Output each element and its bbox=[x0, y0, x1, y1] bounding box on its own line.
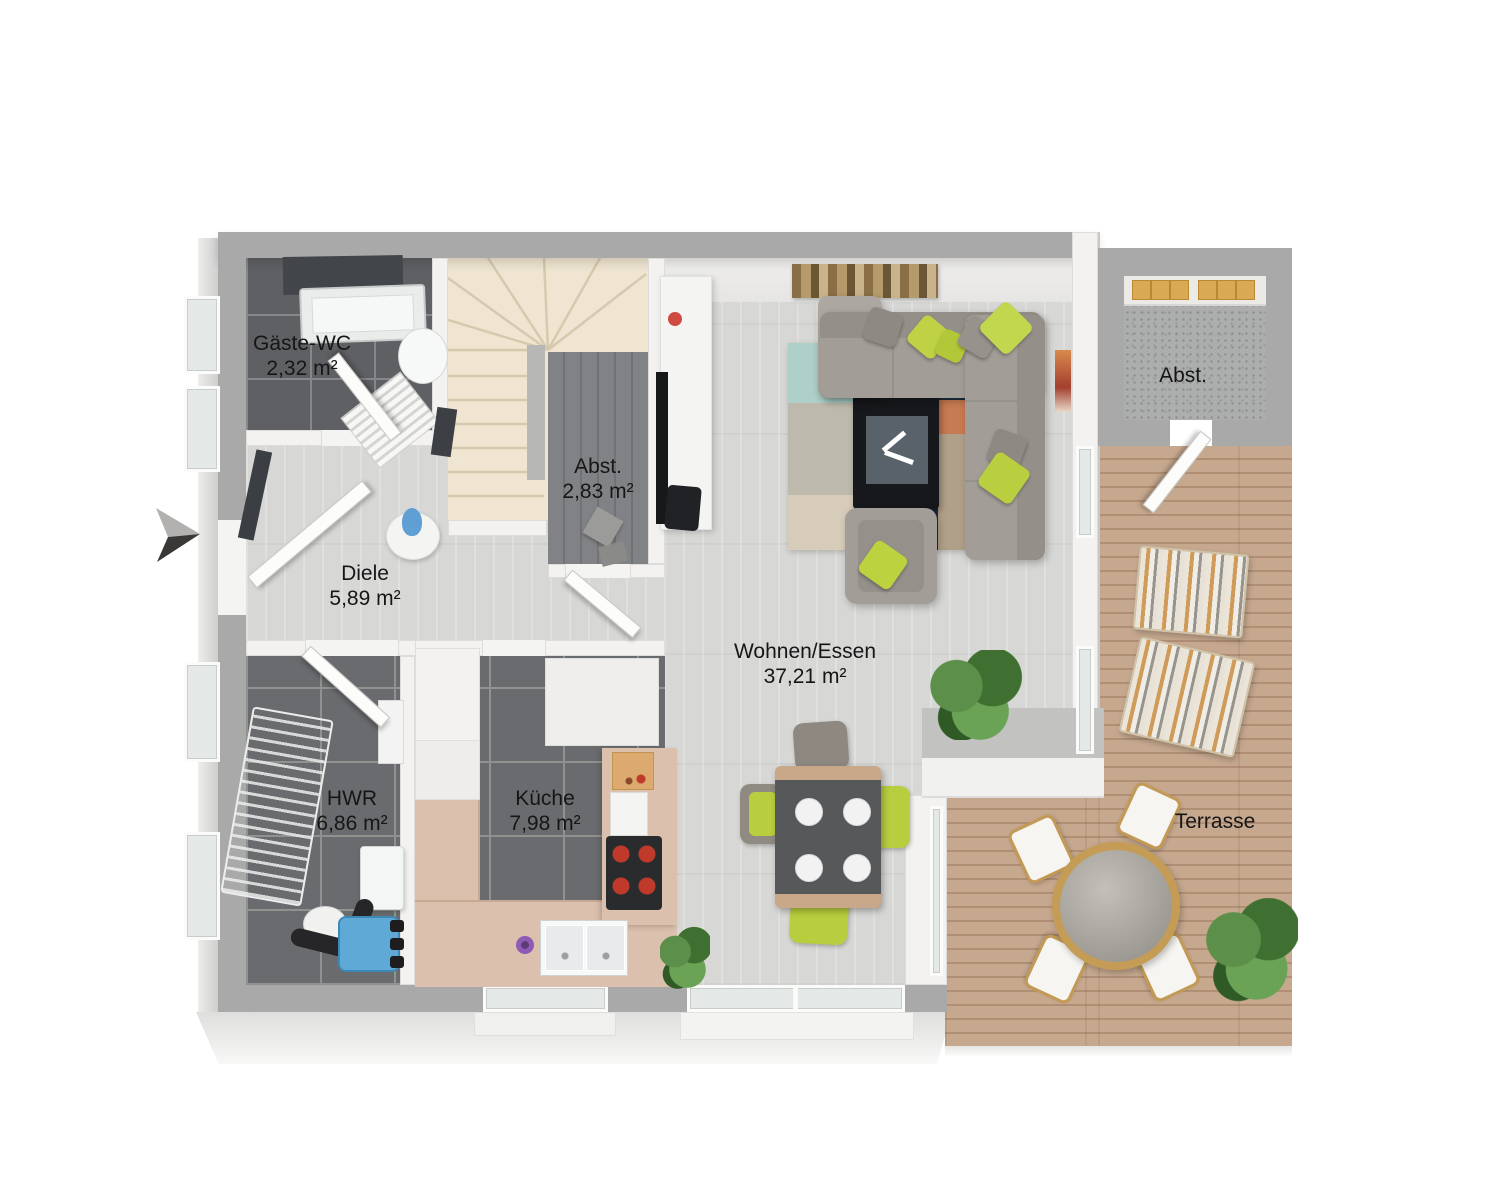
base-shade-deck bbox=[945, 1046, 1292, 1056]
storage-box bbox=[1170, 280, 1189, 300]
cooktop bbox=[606, 836, 662, 910]
wall-exterior-bottom bbox=[905, 985, 947, 1012]
window-kitchen bbox=[483, 985, 608, 1012]
plate bbox=[843, 854, 871, 882]
deck-chair bbox=[1133, 545, 1250, 638]
wall-art-right bbox=[1055, 350, 1071, 412]
storage-ext-wall bbox=[1098, 248, 1124, 446]
heating-valve bbox=[390, 920, 404, 932]
sink-basin bbox=[586, 925, 625, 971]
wall-storage-south bbox=[630, 564, 665, 578]
window-living-right bbox=[1076, 646, 1094, 754]
kitchen-sink bbox=[540, 920, 628, 976]
room-name: Wohnen/Essen bbox=[705, 640, 905, 665]
window-left-utility bbox=[184, 662, 220, 762]
planter-wall-face bbox=[922, 758, 1104, 798]
storage-ext-wall bbox=[1266, 248, 1292, 446]
room-name: Diele bbox=[275, 562, 455, 587]
storage-box bbox=[1198, 280, 1217, 300]
storage-ext-wall bbox=[1098, 420, 1170, 446]
wc-toilet bbox=[398, 328, 448, 384]
room-name: Abst. bbox=[1123, 364, 1243, 389]
kitchen-cabinet-top bbox=[545, 658, 659, 746]
window-left-utility bbox=[184, 832, 220, 940]
room-name: Küche bbox=[455, 787, 635, 812]
wall-hall-kitchen bbox=[545, 640, 665, 656]
wall-wc-south bbox=[246, 430, 322, 446]
room-label-abstellraum-aussen: Abst. bbox=[1123, 364, 1243, 389]
storage-box bbox=[1236, 280, 1255, 300]
storage-ext-wall bbox=[1212, 420, 1292, 446]
heating-valve bbox=[390, 956, 404, 968]
room-label-diele: Diele 5,89 m² bbox=[275, 562, 455, 612]
dining-chair bbox=[792, 720, 849, 772]
decor-flower-purple bbox=[516, 936, 534, 954]
floor-plan: Gäste-WC 2,32 m² Abst. 2,83 m² Diele 5,8… bbox=[0, 0, 1500, 1200]
room-name: Gäste-WC bbox=[212, 332, 392, 357]
room-name: Abst. bbox=[518, 455, 678, 480]
storage-box bbox=[1217, 280, 1236, 300]
plate bbox=[795, 854, 823, 882]
room-area: 5,89 m² bbox=[275, 587, 455, 612]
wall-exterior-bottom bbox=[218, 985, 483, 1012]
wall-stairs-south bbox=[448, 520, 547, 536]
coffee-table-glass bbox=[866, 416, 928, 484]
room-area: 6,86 m² bbox=[262, 812, 442, 837]
wall-hall-utility bbox=[246, 640, 306, 656]
storage-box bbox=[1132, 280, 1151, 300]
room-name: Terrasse bbox=[1140, 810, 1290, 835]
hall-vase bbox=[402, 508, 422, 536]
kitchen-door-opening bbox=[483, 640, 545, 656]
orientation-arrow-icon bbox=[154, 504, 204, 564]
window-left-hall bbox=[184, 386, 220, 472]
coffee-table bbox=[853, 393, 939, 509]
room-label-wohnen-essen: Wohnen/Essen 37,21 m² bbox=[705, 640, 905, 690]
room-area: 7,98 m² bbox=[455, 812, 635, 837]
chair-cushion bbox=[749, 792, 777, 836]
terrace-table bbox=[1052, 842, 1180, 970]
floor-storage-ext bbox=[1124, 302, 1266, 420]
cutting-board bbox=[612, 752, 654, 790]
terrace-step bbox=[680, 1012, 914, 1040]
potted-plant bbox=[1206, 898, 1298, 1002]
sink-basin bbox=[545, 925, 584, 971]
room-label-kueche: Küche 7,98 m² bbox=[455, 787, 635, 837]
terrace-door-living bbox=[1076, 446, 1094, 538]
room-area: 2,32 m² bbox=[212, 357, 392, 382]
room-label-terrasse: Terrasse bbox=[1140, 810, 1290, 835]
wc-sink-basin bbox=[311, 294, 414, 334]
plate bbox=[843, 798, 871, 826]
window-sill-kitchen bbox=[474, 1012, 616, 1036]
potted-plant bbox=[660, 926, 710, 990]
room-name: HWR bbox=[262, 787, 442, 812]
wall-art bbox=[792, 264, 938, 298]
wall-storage-south bbox=[548, 564, 566, 578]
decor-flower-red bbox=[668, 312, 682, 326]
dining-table bbox=[775, 766, 881, 908]
wall-exterior-top bbox=[218, 232, 1098, 258]
storage-box bbox=[1151, 280, 1170, 300]
storage-ext-wall bbox=[1098, 248, 1292, 276]
kitchen-cabinet bbox=[415, 648, 480, 742]
room-area: 37,21 m² bbox=[705, 665, 905, 690]
room-label-gaeste-wc: Gäste-WC 2,32 m² bbox=[212, 332, 392, 382]
room-label-hwr: HWR 6,86 m² bbox=[262, 787, 442, 837]
potted-plant bbox=[928, 650, 1023, 740]
window-dining-right bbox=[930, 806, 943, 976]
sliding-door-mullion bbox=[793, 985, 798, 1012]
room-area: 2,83 m² bbox=[518, 480, 678, 505]
plate bbox=[795, 798, 823, 826]
room-label-abstellraum: Abst. 2,83 m² bbox=[518, 455, 678, 505]
heating-valve bbox=[390, 938, 404, 950]
